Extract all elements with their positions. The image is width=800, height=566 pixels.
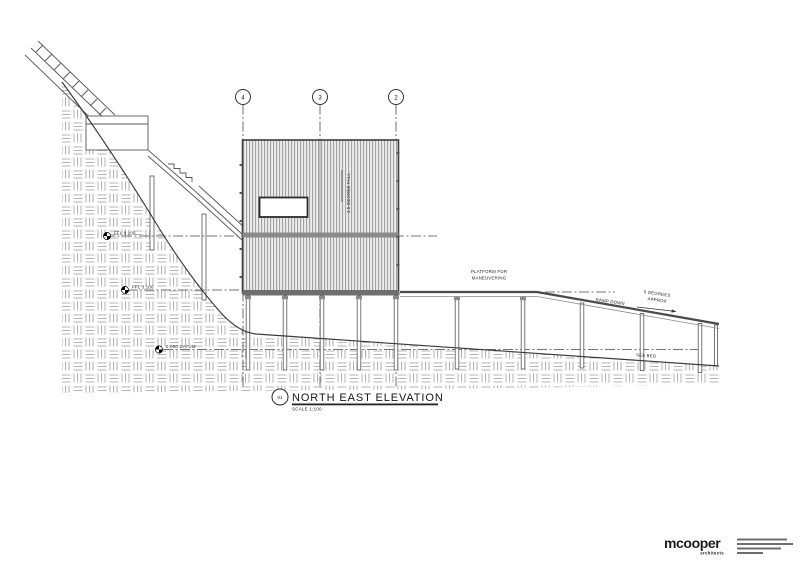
platform-note-line1: PLATFORM FOR: [471, 269, 507, 274]
view-scale: SCALE 1:100: [292, 407, 322, 412]
deck-band: [243, 290, 400, 296]
level-label-ffl3100: FFL 3.100: [132, 285, 154, 290]
drawing-sheet: 4 3 2: [0, 0, 800, 566]
level-marker-icon: [155, 346, 162, 353]
grid-label-3: 3: [318, 95, 322, 102]
floor-band: [243, 233, 399, 238]
firm-address-lines: [737, 539, 793, 555]
building-window: [260, 198, 308, 218]
view-title: NORTH EAST ELEVATION: [292, 392, 444, 404]
stair-flight-mid: [168, 164, 192, 182]
firm-logo-sub: architects: [700, 551, 724, 556]
degrees-note-line2: APPROX: [647, 296, 667, 304]
firm-logo-block: mcooper architects: [664, 535, 793, 556]
grid-label-2: 2: [394, 95, 398, 102]
elevation-drawing: 4 3 2: [0, 0, 800, 566]
detail-number: 01: [277, 395, 283, 400]
level-marker-icon: [121, 286, 128, 293]
level-label-datum: 0.000 DATUM: [166, 344, 196, 349]
grid-label-4: 4: [241, 95, 245, 102]
roof-fall-note: 1.5 DEGREE FALL: [346, 172, 351, 213]
level-marker-icon: [103, 232, 110, 239]
platform-note-line2: MANEUVERING: [472, 276, 507, 281]
firm-logo: mcooper: [664, 535, 721, 551]
stair-landing-upper: [86, 116, 148, 150]
sea-bed-note: SEA BED: [636, 352, 656, 358]
level-label-ffl8100: FFL 8.100: [114, 231, 136, 236]
building: 1.5 DEGREE FALL: [240, 140, 400, 296]
platform-and-ramp: [400, 292, 719, 329]
view-title-block: 01 NORTH EAST ELEVATION SCALE 1:100: [272, 389, 444, 412]
right-annotations: PLATFORM FOR MANEUVERING RAMP DOWN 5 DEG…: [471, 269, 676, 359]
